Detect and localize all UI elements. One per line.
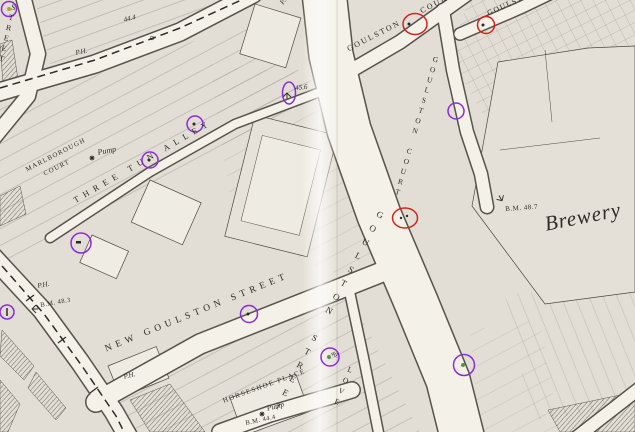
map-drawing — [0, 0, 635, 432]
black-mark — [76, 241, 81, 244]
black-dot — [247, 313, 250, 316]
black-dot — [408, 23, 411, 26]
black-dot — [482, 24, 485, 27]
black-dot — [193, 123, 196, 126]
pump-symbol-icon — [90, 156, 95, 161]
black-dot — [406, 215, 408, 217]
green-dot — [461, 363, 465, 367]
scan-fold — [302, 0, 338, 432]
yellow-dot — [7, 7, 11, 11]
map-canvas: STREET 44.4 P.H. P.H. P.H. P.H. GOULSTON… — [0, 0, 635, 432]
pump-symbol-icon — [260, 412, 265, 417]
black-dot — [148, 159, 151, 162]
black-dot — [400, 217, 402, 219]
green-dot — [327, 355, 331, 359]
